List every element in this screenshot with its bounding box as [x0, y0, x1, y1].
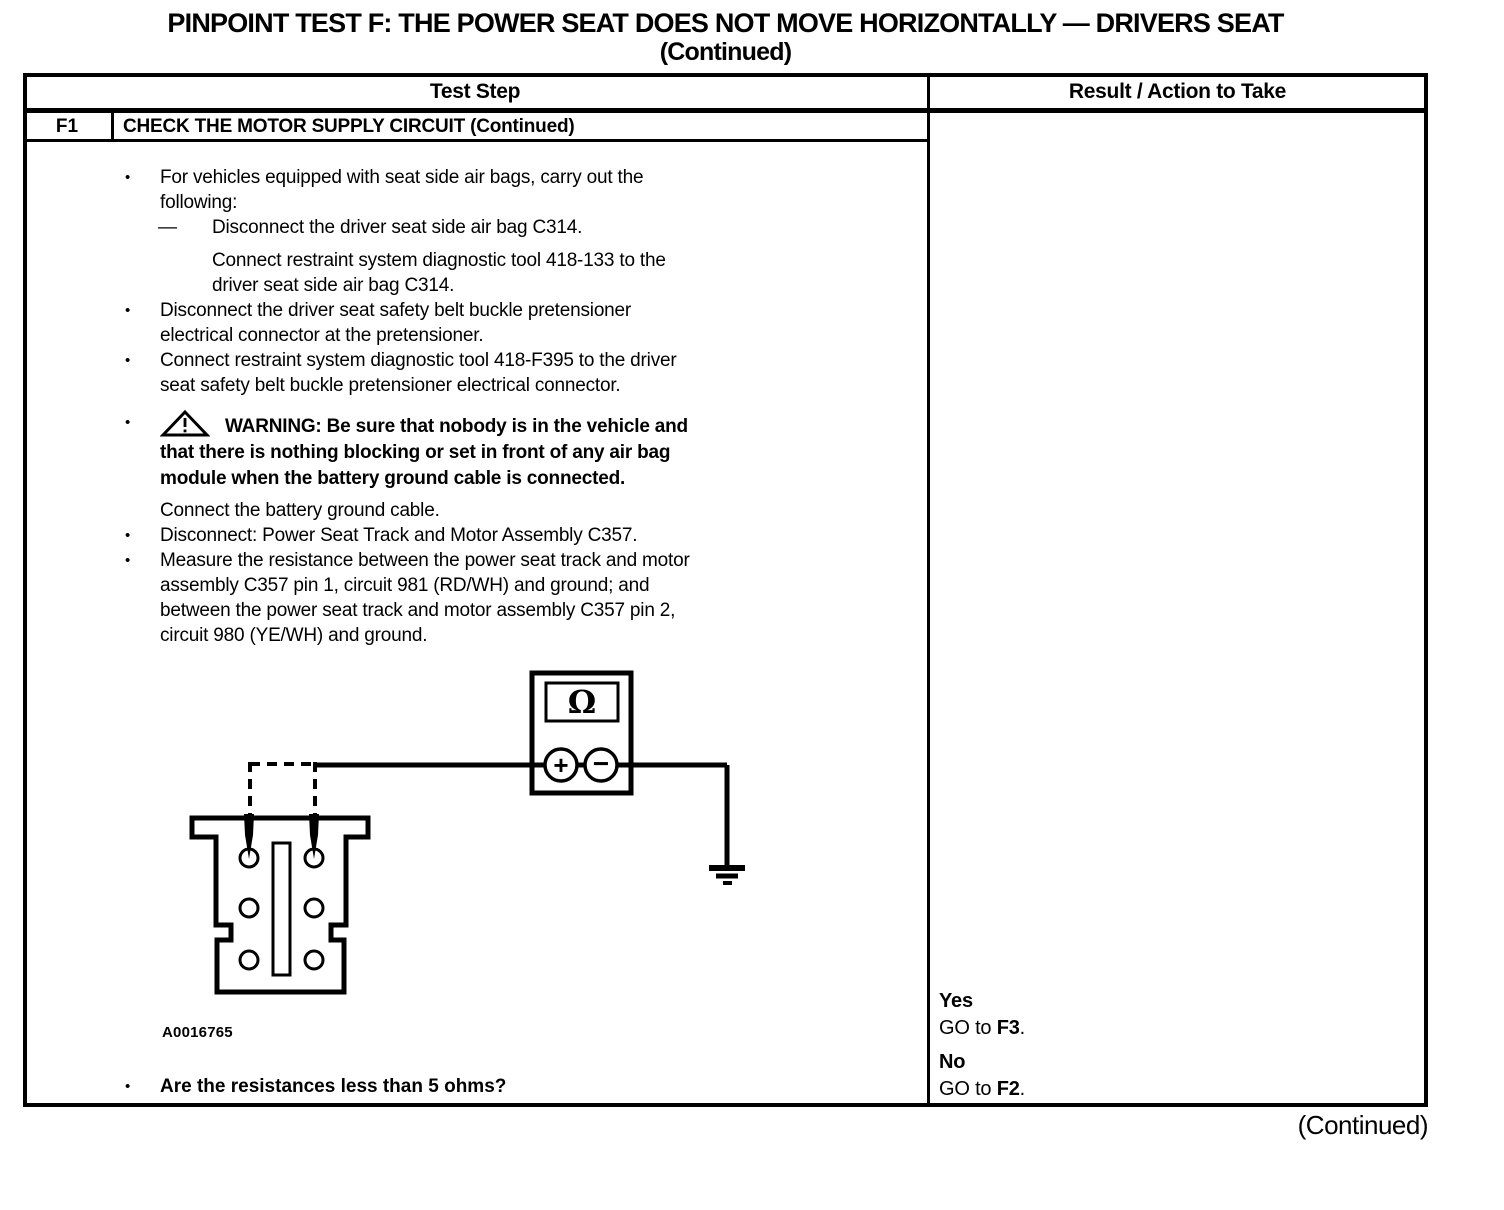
page-title-line2: (Continued) — [23, 38, 1428, 66]
action-prefix: GO to — [939, 1017, 997, 1039]
action-suffix: . — [1020, 1078, 1025, 1100]
pinpoint-test-table: Test Step Result / Action to Take F1 CHE… — [23, 73, 1428, 1107]
action-line: GO to F2. — [939, 1076, 1359, 1103]
positive-terminal-icon: + — [545, 749, 577, 781]
action-suffix: . — [1020, 1017, 1025, 1039]
ohm-symbol: Ω — [568, 683, 596, 721]
connector-keyway-slot — [273, 843, 290, 975]
result-group-no: No GO to F2. — [939, 1049, 1359, 1103]
result-group-yes: Yes GO to F3. — [939, 988, 1359, 1042]
verdict-label: No — [939, 1049, 1359, 1076]
ground-symbol-icon — [709, 868, 745, 883]
bullet-icon: • — [125, 1074, 160, 1099]
test-question: • Are the resistances less than 5 ohms? — [125, 1074, 905, 1099]
svg-text:+: + — [553, 750, 568, 780]
action-prefix: GO to — [939, 1078, 997, 1100]
pin-6 — [305, 951, 323, 969]
pin-5 — [240, 951, 258, 969]
test-wire — [315, 765, 727, 867]
page-title-line1: PINPOINT TEST F: THE POWER SEAT DOES NOT… — [23, 8, 1428, 38]
verdict-label: Yes — [939, 988, 1359, 1015]
resistance-test-circuit-diagram: Ω + − — [23, 73, 1428, 1107]
svg-text:−: − — [593, 748, 609, 779]
pinpoint-test-document-page: PINPOINT TEST F: THE POWER SEAT DOES NOT… — [0, 0, 1504, 1210]
action-target: F2 — [997, 1078, 1020, 1100]
test-question-text: Are the resistances less than 5 ohms? — [160, 1074, 506, 1099]
negative-terminal-icon: − — [585, 748, 617, 781]
page-continued-note: (Continued) — [23, 1110, 1428, 1141]
result-actions: Yes GO to F3. No GO to F2. — [939, 988, 1359, 1103]
pin-3 — [240, 899, 258, 917]
pin-4 — [305, 899, 323, 917]
dashed-test-leads — [250, 762, 315, 816]
action-line: GO to F3. — [939, 1015, 1359, 1042]
figure-reference-label: A0016765 — [162, 1024, 233, 1041]
page-title: PINPOINT TEST F: THE POWER SEAT DOES NOT… — [23, 8, 1428, 66]
action-target: F3 — [997, 1017, 1020, 1039]
